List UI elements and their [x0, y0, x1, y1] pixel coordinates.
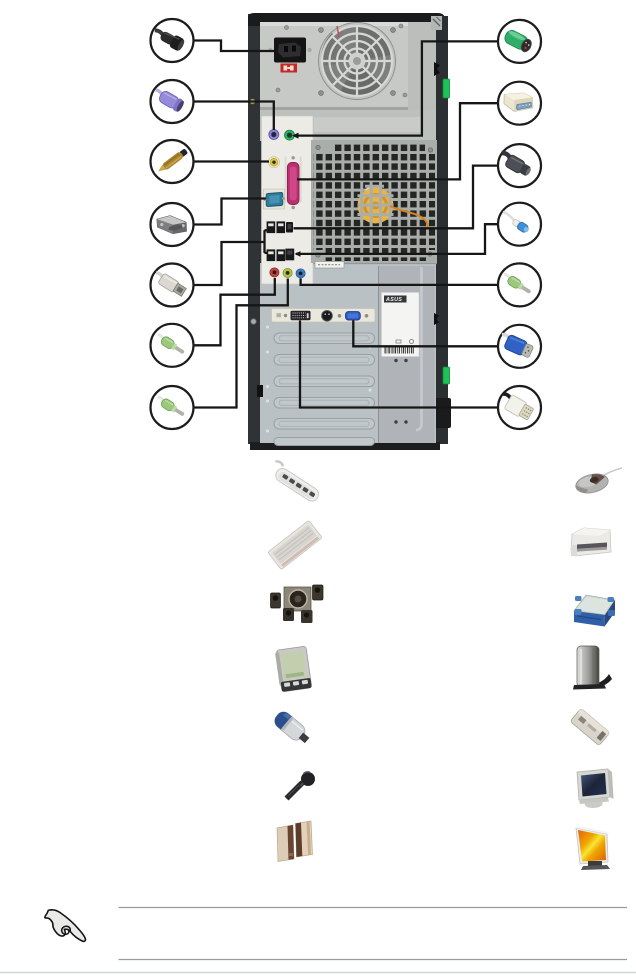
svg-text:ASUS: ASUS — [385, 297, 402, 303]
